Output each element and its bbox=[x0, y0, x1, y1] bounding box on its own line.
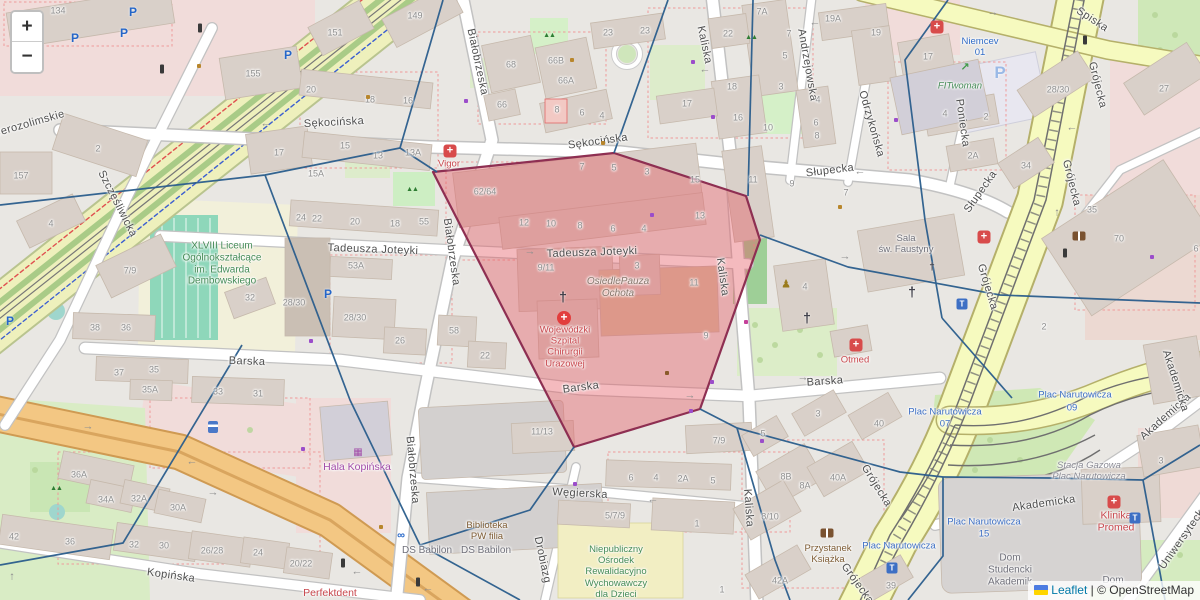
traffic-signal-icon bbox=[1063, 249, 1067, 258]
house-number: 38 bbox=[90, 323, 100, 334]
house-number: 15 bbox=[690, 175, 700, 186]
house-number: 18 bbox=[390, 219, 400, 230]
tram-stop-icon: T bbox=[887, 563, 898, 574]
transit-stop-label: 07 bbox=[940, 418, 951, 429]
street-label-w-gierska: Węgierska bbox=[552, 486, 608, 502]
house-number: 7 bbox=[579, 162, 584, 173]
house-number: 35 bbox=[1087, 205, 1097, 216]
street-label-s-koci-ska: Sękocińska bbox=[304, 115, 365, 131]
pharmacy-icon: + bbox=[931, 21, 944, 34]
traffic-signal-icon bbox=[160, 65, 164, 74]
traffic-signal-icon bbox=[1083, 36, 1087, 45]
church-icon: † bbox=[803, 310, 811, 327]
parking-icon: P bbox=[71, 31, 79, 45]
poi-dot-icon bbox=[573, 482, 577, 486]
street-label-akademicka: Akademicka bbox=[1011, 493, 1076, 515]
street-label-uniwersytecka: Uniwersytecka bbox=[1157, 502, 1200, 572]
oneway-arrow-icon: ← bbox=[423, 583, 434, 596]
street-label-gr-jecka: Grójecka bbox=[974, 263, 1000, 312]
house-number: 24 bbox=[296, 213, 306, 224]
poi-label-wojew-dzki: Wojewódzki Szpital Chirurgii Urazowej bbox=[540, 325, 591, 370]
zoom-control: + − bbox=[10, 10, 44, 74]
playground-icon: ▲▲ bbox=[50, 485, 62, 493]
house-number: 28/30 bbox=[1047, 85, 1070, 96]
house-number: 42 bbox=[9, 532, 19, 543]
playground-icon: ▲▲ bbox=[543, 32, 555, 40]
house-number: 6 bbox=[610, 224, 615, 235]
oneway-arrow-icon: → bbox=[685, 390, 696, 403]
church-icon: † bbox=[559, 289, 567, 306]
street-label-bia-obrzeska: Białobrzeska bbox=[403, 436, 422, 505]
traffic-signal-icon bbox=[341, 559, 345, 568]
house-number: 7A bbox=[756, 7, 767, 18]
house-number: 22 bbox=[723, 29, 733, 40]
house-number: 37 bbox=[114, 368, 124, 379]
house-number: 151 bbox=[327, 28, 342, 39]
house-number: 55 bbox=[419, 217, 429, 228]
house-number: 4 bbox=[942, 109, 947, 120]
poi-label-dom: Dom Studencki Akademik bbox=[988, 552, 1032, 587]
house-number: 2 bbox=[1041, 322, 1046, 333]
house-number: 27 bbox=[1159, 84, 1169, 95]
poi-label-osiedlepauza: OsiedlePauza Ochota bbox=[587, 276, 649, 300]
house-number: 5/7/9 bbox=[605, 511, 625, 522]
poi-label-xlviii-liceum: XLVIII Liceum Ogólnokształcące im. Edwar… bbox=[183, 240, 262, 287]
street-label-kaliska: Kaliska bbox=[694, 25, 715, 65]
house-number: 9/11 bbox=[538, 263, 555, 274]
street-label-bia-obrzeska: Białobrzeska bbox=[464, 28, 491, 97]
poi-label-vigor: Vigor bbox=[438, 158, 460, 169]
poi-dot-icon bbox=[570, 58, 574, 62]
house-number: 8 bbox=[814, 131, 819, 142]
house-number: 4 bbox=[641, 224, 646, 235]
oneway-arrow-icon: → bbox=[840, 251, 851, 264]
house-number: 62/64 bbox=[474, 187, 497, 198]
house-number: 2 bbox=[983, 112, 988, 123]
street-label-andrzejowska: Andrzejowska bbox=[794, 28, 819, 102]
poi-dot-icon bbox=[711, 115, 715, 119]
parking-icon: P bbox=[284, 48, 292, 62]
osm-copyright: © OpenStreetMap bbox=[1097, 583, 1194, 597]
house-number: 4 bbox=[599, 111, 604, 122]
poi-dot-icon bbox=[366, 95, 370, 99]
house-number: 13A bbox=[405, 148, 421, 159]
street-label-s-upecka: Słupecka bbox=[805, 162, 855, 181]
oneway-arrow-icon: → bbox=[208, 487, 219, 500]
church-icon: † bbox=[929, 262, 935, 274]
street-label-barska: Barska bbox=[228, 355, 265, 369]
house-number: 24 bbox=[253, 548, 263, 559]
oneway-arrow-icon: ← bbox=[855, 166, 866, 179]
supermarket-icon: ▦ bbox=[353, 447, 362, 459]
house-number: 157 bbox=[13, 171, 28, 182]
transit-stop-label: Plac Narutowicza bbox=[1038, 389, 1111, 400]
house-number: 36A bbox=[71, 470, 87, 481]
house-number: 40A bbox=[830, 473, 846, 484]
street-label-gr-jecka: Grójecka bbox=[858, 463, 894, 510]
street-label-kaliska: Kaliska bbox=[740, 488, 756, 527]
house-number: 4 bbox=[48, 219, 53, 230]
tram-stop-icon: T bbox=[1130, 513, 1141, 524]
street-label-kaliska: Kaliska bbox=[713, 257, 731, 297]
house-number: 7 bbox=[786, 29, 791, 40]
house-number: 12 bbox=[519, 218, 529, 229]
house-number: 32 bbox=[245, 293, 255, 304]
traffic-signal-icon bbox=[416, 578, 420, 587]
poi-dot-icon bbox=[301, 447, 305, 451]
monument-icon: ♟ bbox=[781, 279, 791, 292]
street-label-barska: Barska bbox=[806, 374, 843, 389]
parking-icon: P bbox=[120, 26, 128, 40]
street-label-bia-obrzeska: Białobrzeska bbox=[440, 218, 462, 287]
poi-dot-icon bbox=[197, 64, 201, 68]
house-number: 39 bbox=[886, 581, 896, 592]
house-number: 36 bbox=[65, 537, 75, 548]
house-number: 17 bbox=[923, 52, 933, 63]
house-number: 4 bbox=[802, 282, 807, 293]
street-label-kopi-ska: Kopińska bbox=[146, 566, 196, 586]
poi-dot-icon bbox=[464, 99, 468, 103]
street-label-gr-jecka: Grójecka bbox=[1059, 159, 1083, 208]
poi-label-perfektdent: Perfektdent bbox=[303, 587, 357, 599]
house-number: 10 bbox=[546, 219, 556, 230]
street-label-s-upecka: Słupecka bbox=[962, 168, 1000, 215]
oneway-arrow-icon: → bbox=[525, 246, 536, 259]
oneway-arrow-icon: ← bbox=[607, 135, 618, 148]
house-number: 7 bbox=[843, 188, 848, 199]
house-number: 6 bbox=[813, 118, 818, 129]
poi-dot-icon bbox=[691, 60, 695, 64]
poi-label-otmed: Otmed bbox=[841, 354, 870, 365]
house-number: 11 bbox=[689, 278, 698, 289]
house-number: 11/13 bbox=[531, 427, 553, 438]
poi-label-biblioteka: Biblioteka PW filia bbox=[466, 520, 507, 542]
street-label-tadeusza-joteyki: Tadeusza Joteyki bbox=[327, 242, 418, 258]
parking-area-icon: P bbox=[994, 63, 1005, 83]
transit-stop-label: 15 bbox=[979, 528, 990, 539]
house-number: 17 bbox=[682, 99, 692, 110]
fitness-icon: ↗ bbox=[960, 62, 969, 75]
house-number: 22 bbox=[312, 214, 322, 225]
oneway-arrow-icon: ← bbox=[261, 118, 272, 131]
poi-label-stacja-gazowa: Stacja Gazowa Plac Narutowicza bbox=[1052, 460, 1125, 482]
poi-dot-icon bbox=[894, 118, 898, 122]
house-number: 10 bbox=[763, 123, 773, 134]
transit-stop-label: Plac Narutowicza bbox=[908, 406, 981, 417]
map-labels-layer: JerozolimskieSzczęśliwickaSękocińskaSęko… bbox=[0, 0, 1200, 600]
house-number: 40 bbox=[874, 419, 884, 430]
house-number: 3 bbox=[778, 82, 783, 93]
house-number: 20/22 bbox=[290, 559, 313, 570]
house-number: 19 bbox=[871, 28, 881, 39]
house-number: 13 bbox=[695, 211, 705, 222]
street-label-gr-jecka: Grójecka bbox=[838, 561, 876, 600]
house-number: 8 bbox=[577, 221, 582, 232]
house-number: 2A bbox=[677, 474, 688, 485]
house-number: 8A bbox=[799, 481, 810, 492]
house-number: 32A bbox=[131, 494, 147, 505]
poi-dot-icon bbox=[309, 339, 313, 343]
house-number: 5 bbox=[611, 163, 616, 174]
house-number: 155 bbox=[245, 69, 260, 80]
house-number: 42A bbox=[772, 576, 788, 587]
street-label-szcz-liwicka: Szczęśliwicka bbox=[95, 169, 140, 240]
street-label-s-koci-ska: Sękocińska bbox=[567, 131, 628, 152]
house-number: 6 bbox=[1193, 244, 1198, 255]
map-canvas[interactable]: JerozolimskieSzczęśliwickaSękocińskaSęko… bbox=[0, 0, 1200, 600]
house-number: 36 bbox=[121, 323, 131, 334]
house-number: 16 bbox=[733, 113, 743, 124]
oneway-arrow-icon: → bbox=[988, 7, 999, 20]
ukraine-flag-icon bbox=[1034, 585, 1048, 595]
house-number: 66 bbox=[497, 100, 507, 111]
house-number: 2 bbox=[95, 144, 100, 155]
house-number: 20 bbox=[350, 217, 360, 228]
parking-icon: P bbox=[6, 314, 14, 328]
house-number: 1 bbox=[694, 519, 699, 530]
house-number: 6 bbox=[628, 473, 633, 484]
house-number: 5 bbox=[782, 51, 787, 62]
house-number: 16 bbox=[403, 96, 413, 107]
poi-label-ds-babilon: DS Babilon bbox=[461, 545, 511, 557]
parking-icon: P bbox=[129, 5, 137, 19]
house-number: 134 bbox=[50, 6, 65, 17]
poi-dot-icon bbox=[1150, 255, 1154, 259]
oneway-arrow-icon: → bbox=[798, 372, 809, 385]
transit-stop-label: 09 bbox=[1067, 402, 1078, 413]
house-number: 15 bbox=[340, 141, 350, 152]
street-label-odrzyko-ska: Odrzykońska bbox=[855, 89, 886, 159]
house-number: 66A bbox=[558, 76, 574, 87]
house-number: 3 bbox=[634, 261, 639, 272]
house-number: 4 bbox=[653, 473, 658, 484]
parking-icon: P bbox=[324, 287, 332, 301]
poi-dot-icon bbox=[665, 371, 669, 375]
street-label-jerozolimskie: Jerozolimskie bbox=[0, 108, 66, 140]
poi-dot-icon bbox=[650, 213, 654, 217]
house-number: 15A bbox=[308, 169, 324, 180]
poi-dot-icon bbox=[744, 320, 748, 324]
house-number: 9 bbox=[703, 331, 708, 342]
oneway-arrow-icon: ← bbox=[352, 566, 363, 579]
house-number: 23 bbox=[603, 28, 613, 39]
poi-label-niepubliczny: Niepubliczny Ośrodek Rewalidacyjno Wycho… bbox=[585, 544, 647, 600]
attribution-separator: | bbox=[1091, 583, 1094, 597]
house-number: 19A bbox=[825, 14, 841, 25]
zoom-out-button[interactable]: − bbox=[12, 42, 42, 72]
house-number: 32 bbox=[129, 540, 139, 551]
bicycle-icon: ∞ bbox=[397, 530, 405, 543]
playground-icon: ▲▲ bbox=[745, 34, 757, 42]
house-number: 3 bbox=[644, 167, 649, 178]
oneway-arrow-icon: ← bbox=[700, 64, 711, 77]
house-number: 2A bbox=[967, 151, 978, 162]
house-number: 6 bbox=[579, 108, 584, 119]
pharmacy-icon: + bbox=[978, 231, 991, 244]
house-number: 149 bbox=[407, 11, 422, 22]
house-number: 23 bbox=[640, 26, 650, 37]
house-number: 18 bbox=[365, 95, 375, 106]
street-label-poniecka: Poniecka bbox=[952, 98, 972, 148]
house-number: 17 bbox=[274, 148, 284, 159]
clinic-icon: + bbox=[1108, 496, 1121, 509]
poi-label-ds-babilon: DS Babilon bbox=[402, 545, 452, 557]
house-number: 3 bbox=[1158, 456, 1163, 467]
attribution-bar: Leaflet | © OpenStreetMap bbox=[1028, 581, 1200, 600]
house-number: 34 bbox=[1021, 161, 1031, 172]
house-number: 26 bbox=[395, 336, 405, 347]
poi-dot-icon bbox=[601, 141, 605, 145]
house-number: 4 bbox=[815, 95, 820, 106]
street-label-akademicka: Akademicka bbox=[1138, 391, 1194, 443]
house-number: 58 bbox=[449, 326, 459, 337]
house-number: 28/30 bbox=[344, 313, 367, 324]
house-number: 5 bbox=[710, 476, 715, 487]
street-label-gr-jecka: Grójecka bbox=[1085, 61, 1109, 110]
oneway-arrow-icon: → bbox=[83, 421, 94, 434]
house-number: 1 bbox=[719, 585, 724, 596]
oneway-arrow-icon: ← bbox=[187, 456, 198, 469]
house-number: 70 bbox=[1114, 234, 1124, 245]
house-number: 20 bbox=[306, 85, 316, 96]
poi-label-klinika: Klinika Promed bbox=[1098, 510, 1135, 535]
street-label-drobiazg: Drobiazg bbox=[531, 536, 554, 585]
house-number: 31 bbox=[253, 389, 263, 400]
oneway-arrow-icon: ↑ bbox=[9, 571, 15, 584]
house-number: 33 bbox=[213, 387, 223, 398]
fuel-icon bbox=[208, 421, 218, 433]
poi-label-sala: Sala św. Faustyny bbox=[879, 233, 934, 255]
poi-label-niemcev: Niemcev 01 bbox=[962, 36, 999, 58]
poi-label-przystanek: Przystanek Książka bbox=[805, 543, 852, 565]
house-number: 18 bbox=[727, 82, 737, 93]
house-number: 68 bbox=[506, 60, 516, 71]
leaflet-link[interactable]: Leaflet bbox=[1051, 583, 1087, 597]
clinic-icon: + bbox=[850, 339, 863, 352]
library-icon bbox=[1073, 232, 1086, 241]
house-number: 34A bbox=[98, 495, 114, 506]
house-number: 30A bbox=[170, 503, 186, 514]
street-label-barska: Barska bbox=[562, 379, 600, 396]
house-number: 28/30 bbox=[283, 298, 306, 309]
house-number: 3 bbox=[815, 409, 820, 420]
transit-stop-label: Plac Narutowicza bbox=[947, 516, 1020, 527]
house-number: 53A bbox=[348, 261, 364, 272]
house-number: 11 bbox=[748, 175, 757, 186]
poi-dot-icon bbox=[760, 439, 764, 443]
poi-dot-icon bbox=[838, 205, 842, 209]
street-label-akademicka: Akademicka bbox=[1159, 349, 1191, 414]
zoom-in-button[interactable]: + bbox=[12, 12, 42, 42]
house-number: 13 bbox=[373, 151, 383, 162]
house-number: 30 bbox=[159, 541, 169, 552]
house-number: 35A bbox=[142, 385, 158, 396]
poi-dot-icon bbox=[379, 525, 383, 529]
poi-dot-icon bbox=[710, 380, 714, 384]
house-number: 8 bbox=[554, 105, 559, 116]
house-number: 66B bbox=[548, 56, 564, 67]
street-label-spiska: Spiska bbox=[1074, 5, 1111, 35]
house-number: 8/10 bbox=[761, 512, 779, 523]
house-number: 7/9 bbox=[124, 266, 137, 277]
oneway-arrow-icon: ← bbox=[648, 494, 659, 507]
church-icon: † bbox=[908, 284, 916, 301]
poi-label-fitwoman: FITwoman bbox=[938, 80, 982, 91]
house-number: 22 bbox=[480, 351, 490, 362]
hospital-icon: + bbox=[444, 145, 457, 158]
street-label-tadeusza-joteyki: Tadeusza Joteyki bbox=[546, 245, 637, 261]
oneway-arrow-icon: ← bbox=[810, 17, 821, 30]
traffic-signal-icon bbox=[198, 24, 202, 33]
house-number: 9 bbox=[789, 179, 794, 190]
oneway-arrow-icon: ↑ bbox=[1054, 207, 1060, 220]
house-number: 8B bbox=[780, 472, 791, 483]
poi-dot-icon bbox=[689, 409, 693, 413]
house-number: 35 bbox=[149, 365, 159, 376]
tram-stop-icon: T bbox=[957, 299, 968, 310]
transit-stop-label: Plac Narutowicza bbox=[862, 540, 935, 551]
house-number: 5 bbox=[760, 429, 765, 440]
poi-label-hala-kopi-ska: Hala Kopińska bbox=[323, 461, 391, 473]
oneway-arrow-icon: ← bbox=[1067, 122, 1078, 135]
playground-icon: ▲▲ bbox=[406, 186, 418, 194]
house-number: 7/9 bbox=[713, 436, 726, 447]
library-icon bbox=[821, 529, 834, 538]
house-number: 26/28 bbox=[201, 546, 224, 557]
hospital-icon: + bbox=[557, 311, 571, 325]
